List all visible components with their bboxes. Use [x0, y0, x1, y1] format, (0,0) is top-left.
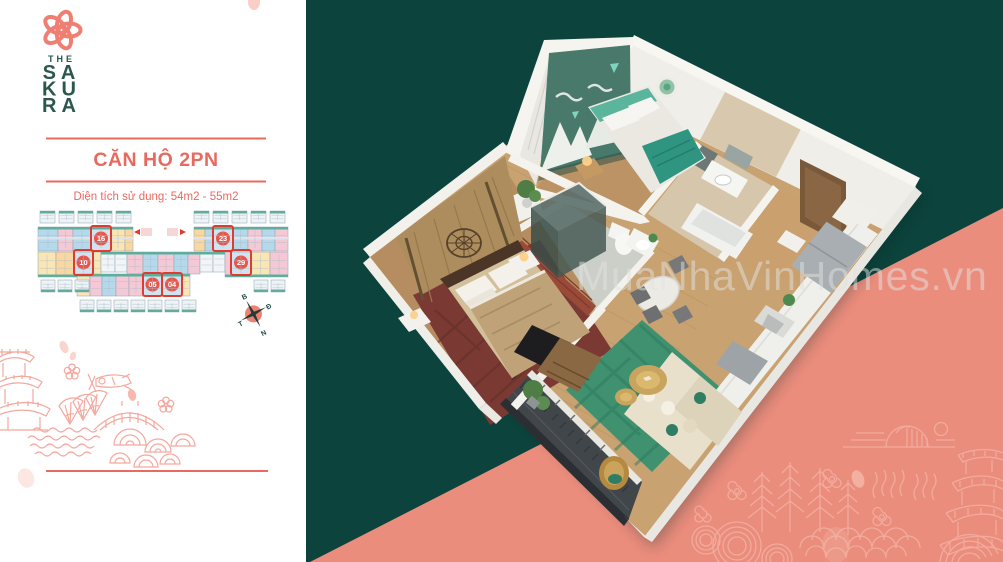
- svg-text:Diện tích sử dụng: 54m2 - 55m2: Diện tích sử dụng: 54m2 - 55m2: [74, 191, 239, 203]
- svg-text:T: T: [237, 320, 245, 329]
- svg-text:RA: RA: [42, 95, 81, 117]
- svg-text:MuaNhaVinHomes.vn: MuaNhaVinHomes.vn: [576, 253, 988, 299]
- svg-text:B: B: [241, 293, 249, 302]
- svg-text:CĂN HỘ 2PN: CĂN HỘ 2PN: [93, 147, 218, 171]
- svg-text:Đ: Đ: [265, 303, 273, 312]
- svg-text:N: N: [260, 329, 268, 338]
